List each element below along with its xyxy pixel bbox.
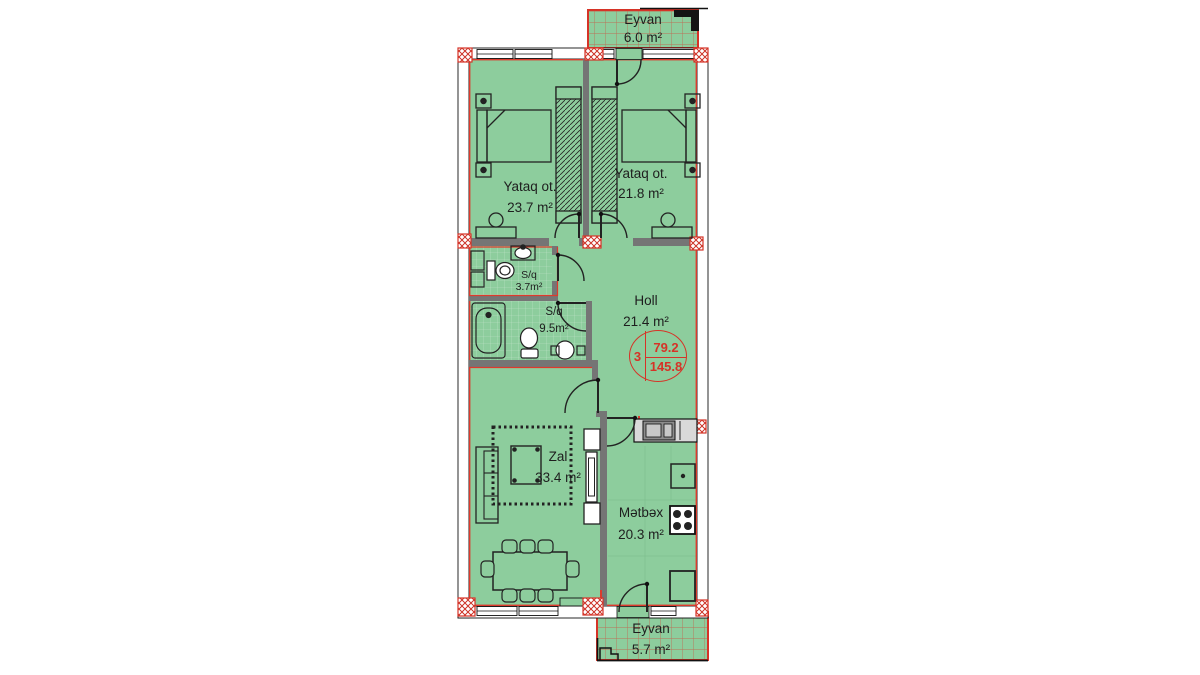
chair-icon (538, 589, 553, 602)
tv-stand-icon (584, 503, 600, 524)
toilet-tank-icon (487, 261, 495, 280)
toilet-tank-icon (521, 349, 538, 358)
room-label-zal: Zal 33.4 m² (535, 446, 581, 488)
stamp-lower-area: 145.8 (646, 358, 686, 374)
chair-icon (538, 540, 553, 553)
toilet-icon (521, 328, 538, 348)
room-label-yataq-left: Yataq ot. 23.7 m² (503, 176, 556, 218)
tv-stand-icon (584, 429, 600, 450)
stamp-flat-number: 3 (630, 331, 646, 381)
chair-icon (520, 540, 535, 553)
wardrobe-icon (592, 87, 617, 223)
chair-icon (502, 540, 517, 553)
room-label-eyvan-top: Eyvan 6.0 m² (624, 11, 662, 47)
chair-icon (481, 561, 494, 577)
dining-table-icon (493, 552, 567, 590)
chair-icon (661, 213, 675, 227)
fridge-icon (670, 571, 695, 601)
room-label-sq-large: S/q 9.5m² (539, 304, 568, 338)
floor-plan-page: Eyvan 6.0 m² Yataq ot. 23.7 m² Yataq ot.… (0, 0, 1200, 675)
apartment-stamp: 3 79.2 145.8 (629, 330, 687, 382)
lamp-icon (481, 167, 486, 172)
toilet-icon (496, 263, 514, 279)
stamp-upper-area: 79.2 (646, 339, 686, 358)
chair-icon (566, 561, 579, 577)
balcony-door-gap-top (616, 48, 642, 59)
chair-icon (502, 589, 517, 602)
stove-icon (670, 506, 695, 534)
room-label-holl: Holl 21.4 m² (623, 290, 669, 332)
chair-icon (520, 589, 535, 602)
room-label-yataq-right: Yataq ot. 21.8 m² (614, 164, 667, 204)
room-label-metbex: Mətbəx 20.3 m² (618, 502, 664, 546)
balcony-door-gap-bottom (617, 606, 649, 617)
room-label-eyvan-bottom: Eyvan 5.7 m² (632, 618, 670, 660)
lamp-icon (690, 98, 695, 103)
room-label-sq-small: S/q 3.7m² (516, 269, 543, 293)
floor-plan-drawing (0, 0, 1200, 675)
lamp-icon (690, 167, 695, 172)
chair-icon (489, 213, 503, 227)
lamp-icon (481, 98, 486, 103)
tv-icon (586, 452, 597, 502)
wardrobe-icon (556, 87, 581, 223)
